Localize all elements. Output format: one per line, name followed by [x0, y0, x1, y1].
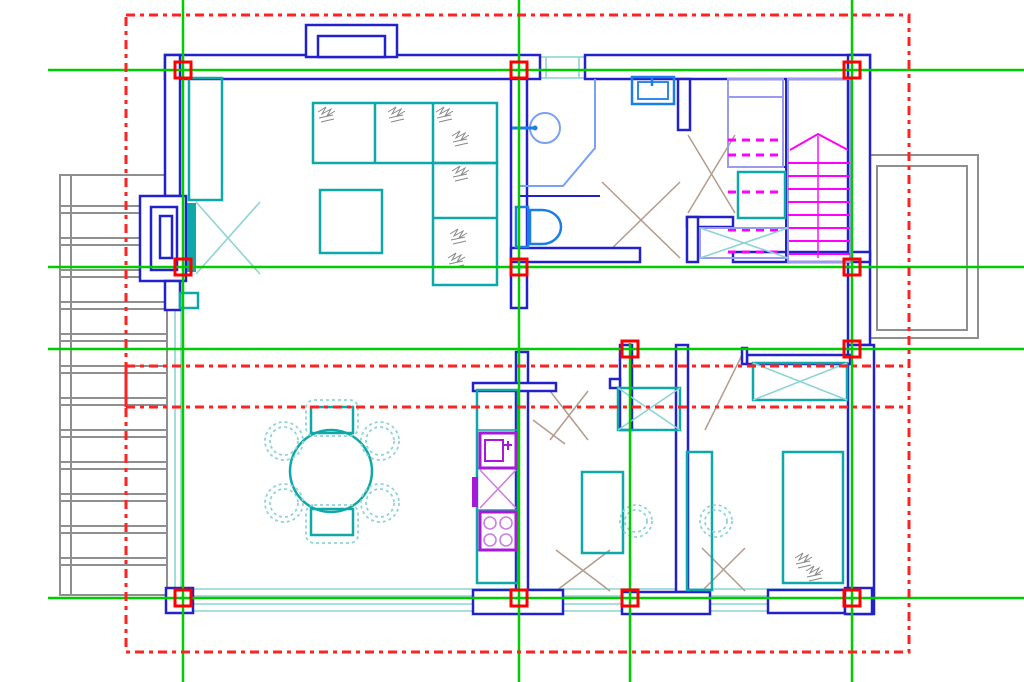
dining-chair-ur [361, 422, 399, 460]
dining-chair-ll [265, 484, 303, 522]
south-pillar-1 [166, 588, 193, 613]
wardrobe-bedroom [753, 363, 847, 400]
north-window [540, 57, 585, 78]
desk-study [582, 472, 623, 553]
floorplan-drawing[interactable] [0, 0, 1024, 682]
kitchen-counter [472, 390, 518, 583]
washing-machine [632, 77, 674, 104]
kitchen-sink [480, 433, 516, 468]
west-window [175, 310, 181, 588]
dishwasher [472, 470, 516, 508]
bathroom-fixtures [512, 77, 674, 247]
dining-chair-ul [265, 422, 303, 460]
west-wall-upper [165, 55, 180, 196]
south-pillar-3 [622, 592, 710, 614]
counter-handle [472, 477, 478, 507]
chair-bedroom [700, 505, 732, 537]
dining-chair-lr [361, 484, 399, 522]
coffee-table [320, 190, 382, 253]
chair-study [620, 505, 652, 537]
dining-set [265, 400, 399, 543]
bed [783, 452, 843, 583]
bathroom-south-wall [511, 248, 640, 262]
structural-grid-axes [48, 0, 1024, 682]
north-wall-east [585, 55, 870, 79]
balcony [868, 155, 978, 338]
north-wall-west [165, 55, 540, 79]
shower-partition [518, 79, 595, 186]
corner-sofa [313, 103, 497, 285]
cad-viewport[interactable] [0, 0, 1024, 682]
south-pillar-4 [768, 590, 845, 613]
stove [480, 512, 516, 550]
